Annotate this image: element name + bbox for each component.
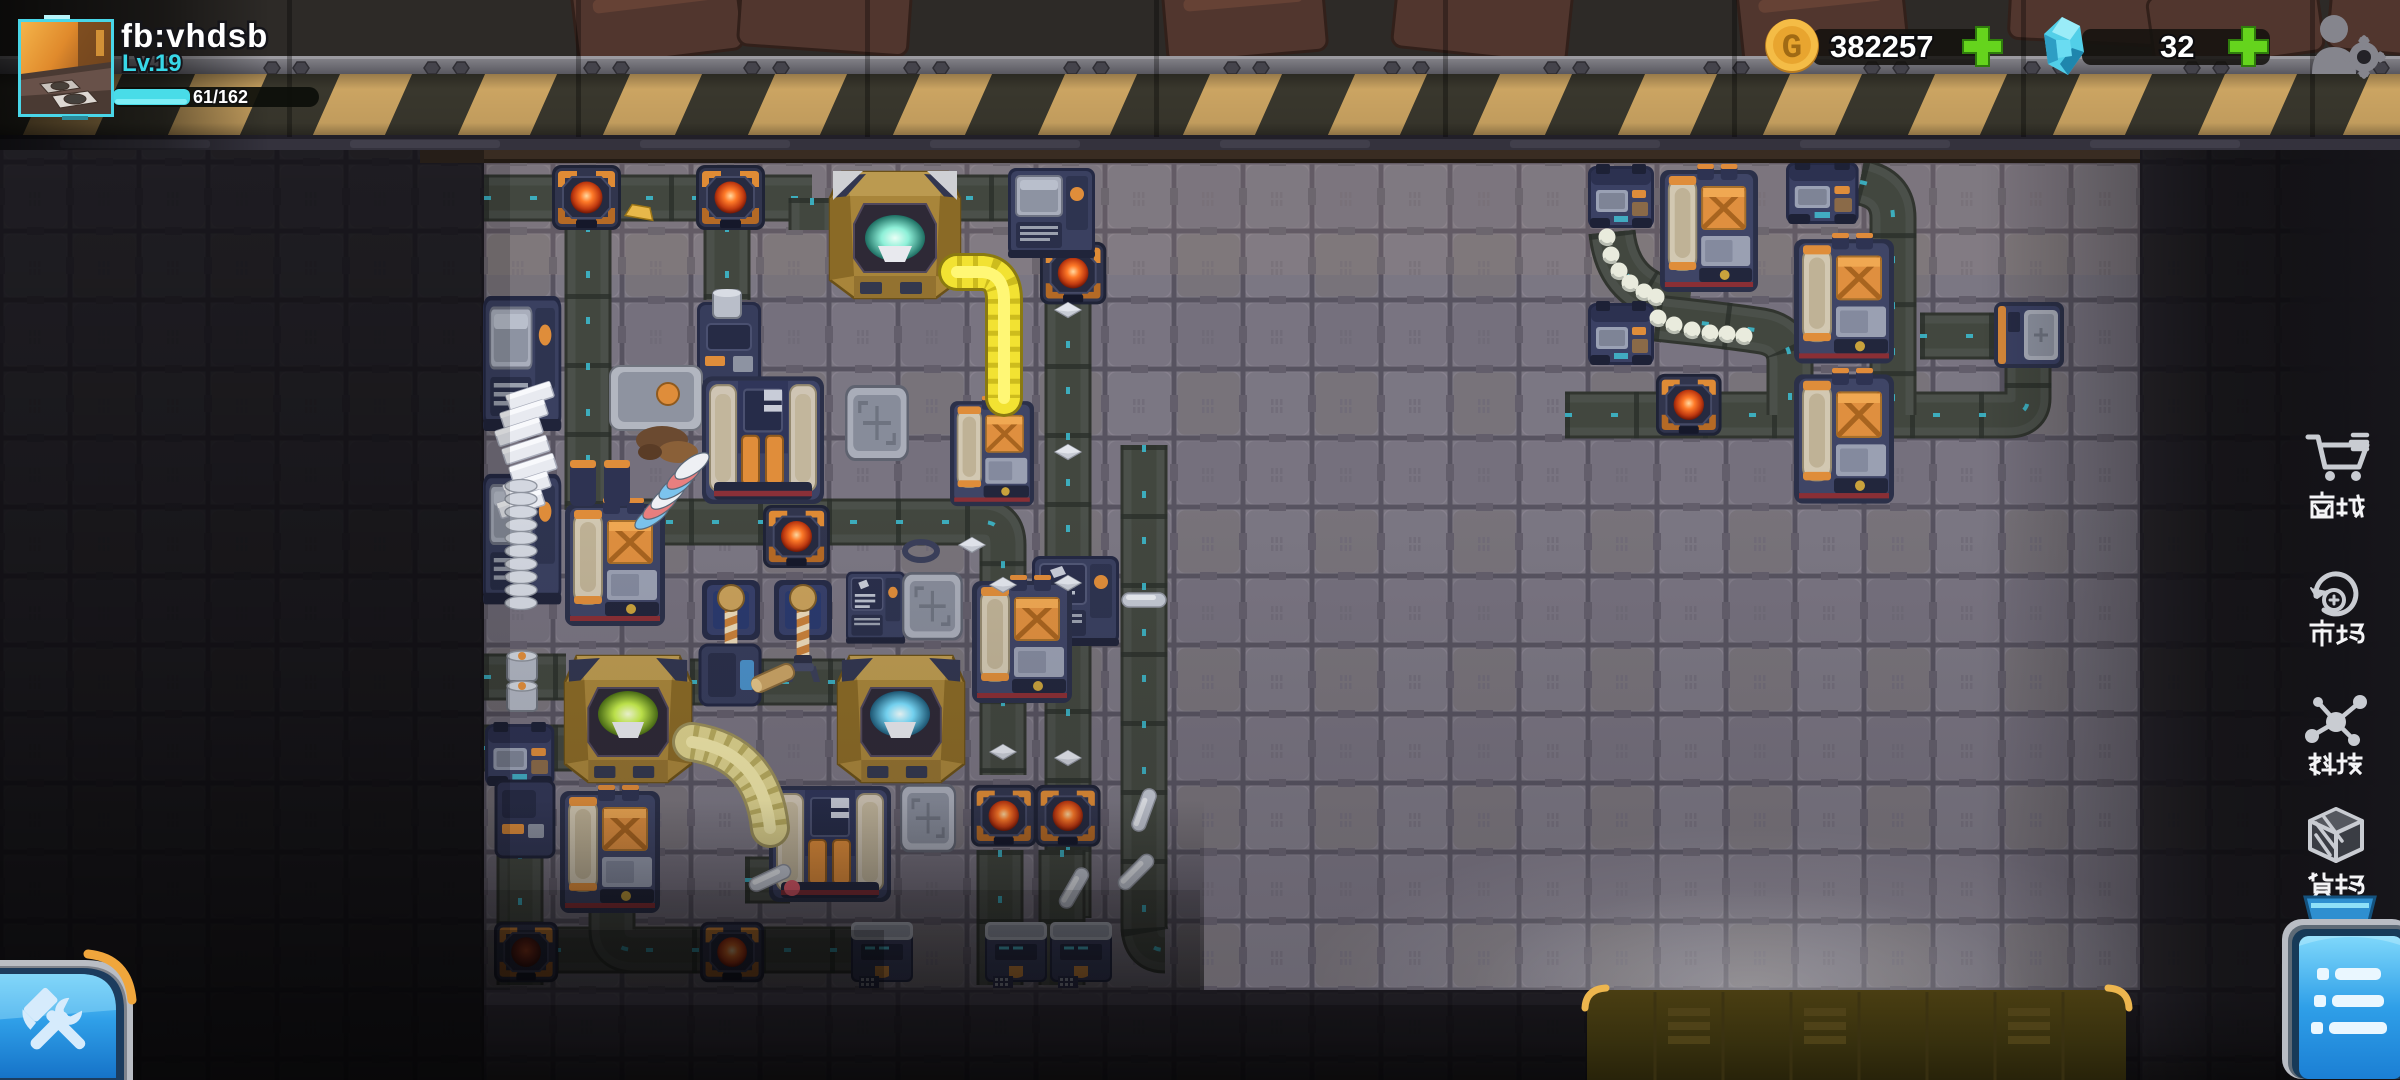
svg-text:382257: 382257 (1830, 29, 1933, 64)
svg-text:61/162: 61/162 (193, 87, 248, 107)
svg-text:Lv.19: Lv.19 (122, 50, 182, 77)
svg-text:32: 32 (2160, 29, 2194, 64)
svg-text:G: G (1782, 30, 1802, 68)
svg-text:fb:vhdsb: fb:vhdsb (121, 17, 268, 54)
